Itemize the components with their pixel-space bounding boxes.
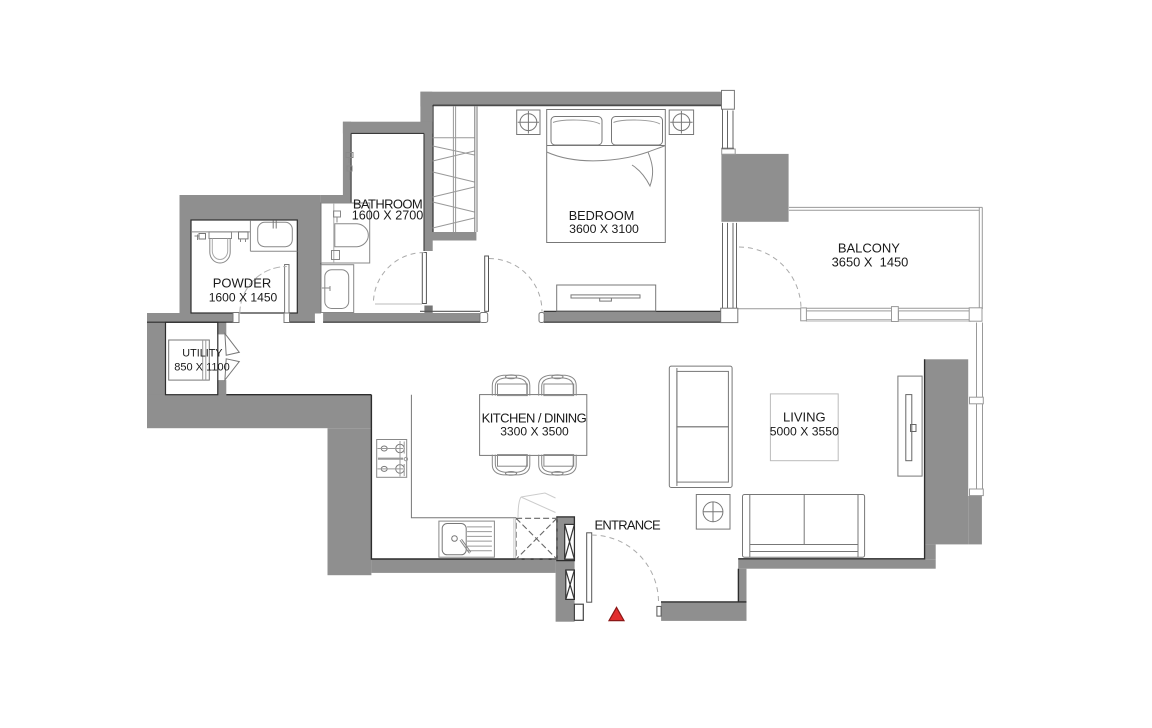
svg-text:3300 X 3500: 3300 X 3500 [500,425,569,439]
svg-text:BEDROOM: BEDROOM [569,209,635,223]
svg-text:POWDER: POWDER [213,276,272,291]
svg-text:3650 X 1450: 3650 X 1450 [832,254,909,269]
svg-text:5000 X 3550: 5000 X 3550 [770,425,839,439]
svg-text:850 X 1100: 850 X 1100 [174,362,229,374]
svg-text:KITCHEN / DINING: KITCHEN / DINING [482,410,587,425]
svg-text:1600 X 2700: 1600 X 2700 [352,209,423,223]
svg-text:UTILITY: UTILITY [182,348,222,360]
svg-text:BALCONY: BALCONY [838,240,900,255]
svg-text:3600 X 3100: 3600 X 3100 [569,222,639,236]
svg-text:ENTRANCE: ENTRANCE [594,517,661,532]
svg-text:1600 X 1450: 1600 X 1450 [209,291,278,305]
svg-text:LIVING: LIVING [783,409,826,424]
